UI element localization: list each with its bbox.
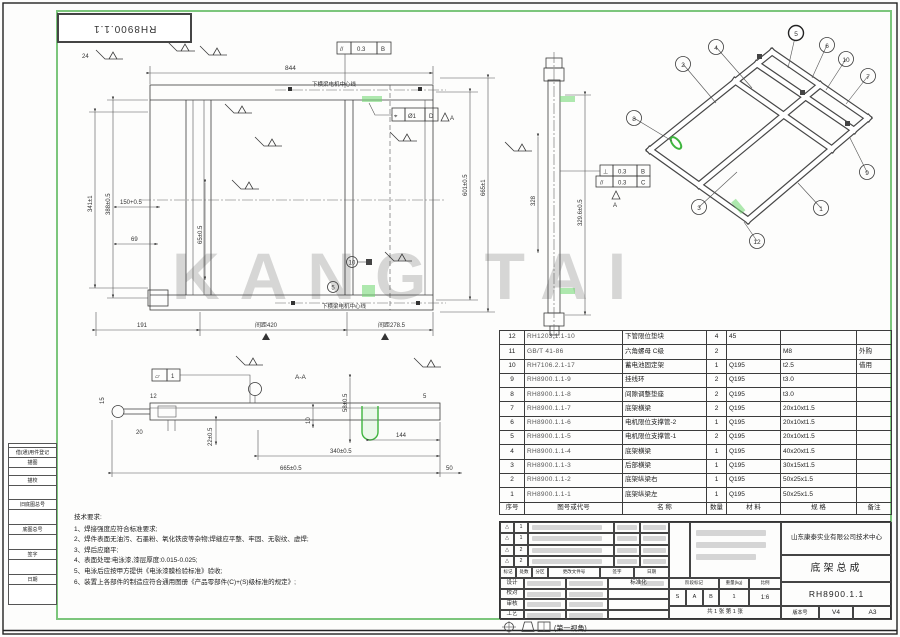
- rev-mark: △: [500, 545, 514, 556]
- parts-cell-qty: 2: [707, 388, 727, 402]
- fcf-parallelism: // 0.3 B: [337, 42, 391, 88]
- svg-text:C: C: [641, 181, 646, 187]
- svg-text:A: A: [613, 203, 617, 209]
- parts-cell-qty: 2: [707, 431, 727, 445]
- sign-label2: [608, 599, 669, 610]
- dim-20: 20: [136, 430, 143, 436]
- parts-row: 6RH8900.1.1-6电机限位支撑管-21Q19520x10xt1.5: [500, 416, 892, 430]
- parts-cell-remark: [857, 416, 892, 430]
- svg-text:8: 8: [632, 116, 636, 123]
- balloon: 6: [812, 38, 835, 79]
- parts-cell-material: Q195: [727, 388, 781, 402]
- illegible-text: [696, 554, 756, 560]
- parts-cell-material: [727, 345, 781, 359]
- highlight-green: [669, 135, 683, 150]
- balloon: 7: [846, 69, 876, 105]
- illegible-text: [569, 613, 603, 618]
- svg-text:6: 6: [825, 43, 829, 50]
- fcf-perpendicularity: ⊥ 0.3 B: [600, 165, 650, 176]
- section-label: A-A: [295, 374, 307, 381]
- svg-text:5: 5: [794, 31, 798, 38]
- dim-278: 间距278.5: [378, 321, 406, 329]
- illegible-text: [569, 581, 603, 586]
- parts-cell-code: RH8900.1.1-5: [525, 431, 623, 445]
- parts-cell-no: 12: [500, 331, 525, 345]
- dim-191: 191: [137, 323, 148, 329]
- parts-cell-qty: 1: [707, 445, 727, 459]
- svg-text:2: 2: [681, 62, 685, 69]
- svg-text://: //: [600, 181, 604, 187]
- parts-cell-material: Q195: [727, 416, 781, 430]
- parts-cell-spec: 30x15xt1.5: [781, 459, 857, 473]
- parts-cell-material: 45: [727, 331, 781, 345]
- parts-cell-no: 1: [500, 488, 525, 502]
- parts-cell-name: 底架纵梁右: [623, 473, 707, 487]
- technical-requirements: 技术要求:1、焊接强度应符合标准要求;2、焊件表面无油污、石墨粉、氧化铁皮等杂物…: [74, 513, 484, 588]
- svg-text:▱: ▱: [155, 374, 160, 380]
- tech-notes-title: 技术要求:: [74, 513, 484, 524]
- balloon: 4: [709, 40, 753, 89]
- illegible-text: [643, 536, 666, 541]
- drawing-number: RH8900.1.1: [781, 582, 892, 606]
- detail-view: ▱ 1 A-A 665±0.5 340±0.5 144 50 58±0.5 22…: [100, 356, 462, 477]
- parts-cell-material: Q195: [727, 488, 781, 502]
- parts-cell-spec: t2.5: [781, 359, 857, 373]
- sign-label: 工艺: [500, 610, 524, 621]
- main-view: 844 601±0.5 665±1 341±1 388±0.5 150+0.5 …: [82, 42, 495, 340]
- parts-cell-name: 后部横梁: [623, 459, 707, 473]
- parts-cell-code: RH8900.1.1-7: [525, 402, 623, 416]
- parts-cell-code: RH7106.2.1-17: [525, 359, 623, 373]
- parts-row: 9RH8900.1.1-9挂线环2Q195t3.0: [500, 373, 892, 387]
- sign-label: 设计: [500, 578, 524, 589]
- parts-cell-name: 下管限位垫块: [623, 331, 707, 345]
- drawing-sheet: KANG TAI: [0, 0, 900, 637]
- illegible-text: [527, 581, 561, 586]
- parts-cell-remark: 借用: [857, 359, 892, 373]
- parts-cell-spec: 20x10xt1.5: [781, 402, 857, 416]
- parts-cell-remark: [857, 402, 892, 416]
- parts-cell-no: 7: [500, 402, 525, 416]
- illegible-text: [569, 592, 603, 597]
- projection-label: (第一视角): [554, 624, 587, 633]
- parts-row: 4RH8900.1.1-4底架横梁1Q19540x20xt1.5: [500, 445, 892, 459]
- parts-cell-name: 底架横梁: [623, 402, 707, 416]
- paper-size: A3: [853, 606, 892, 620]
- parts-cell-material: Q195: [727, 459, 781, 473]
- parts-cell-material: Q195: [727, 473, 781, 487]
- stage-mark: S: [669, 589, 686, 606]
- tech-note-item: 3、焊后应磨平;: [74, 546, 484, 557]
- centerline-note-bottom: 下横梁电机中心线: [322, 302, 367, 310]
- parts-cell-qty: 4: [707, 331, 727, 345]
- dim-144: 144: [396, 433, 407, 439]
- svg-text:Ø1: Ø1: [408, 114, 417, 120]
- svg-text:B: B: [641, 170, 645, 176]
- parts-cell-remark: 外购: [857, 345, 892, 359]
- parts-header-cell: 规 格: [781, 502, 857, 514]
- svg-text:1: 1: [819, 206, 823, 213]
- parts-cell-qty: 1: [707, 473, 727, 487]
- highlight-green: [362, 96, 382, 102]
- rev-header-cell: 签字: [600, 567, 634, 578]
- parts-cell-name: 间隙调整垫座: [623, 388, 707, 402]
- parts-cell-material: Q195: [727, 431, 781, 445]
- parts-cell-name: 蓄电池固定架: [623, 359, 707, 373]
- parts-cell-remark: [857, 431, 892, 445]
- main-balloon-5: 5: [328, 282, 339, 293]
- highlight-green: [560, 96, 575, 102]
- fcf-flatness: ▱ 1: [152, 369, 250, 403]
- weight-value: 1: [719, 589, 749, 606]
- rev-count: 2: [514, 545, 528, 556]
- weld-note-24: 24: [82, 54, 89, 60]
- edge-field: 日期: [8, 574, 57, 585]
- parts-cell-material: Q195: [727, 359, 781, 373]
- illegible-text: [527, 592, 561, 597]
- parts-cell-remark: [857, 388, 892, 402]
- illegible-text: [696, 542, 766, 548]
- weight-label: 重量(kg): [719, 578, 749, 589]
- dim-388: 388±0.5: [106, 193, 112, 215]
- svg-text:⌖: ⌖: [394, 114, 398, 120]
- parts-cell-qty: 1: [707, 416, 727, 430]
- parts-cell-code: GB/T 41-86: [525, 345, 623, 359]
- parts-header-cell: 图号或代号: [525, 502, 623, 514]
- rev-count: 2: [514, 556, 528, 567]
- parts-cell-code: RH8900.1.1-1: [525, 488, 623, 502]
- version-value: V4: [819, 606, 853, 620]
- balloon: 10: [826, 52, 854, 91]
- edge-field: 描图: [8, 457, 57, 468]
- dim-12: 12: [150, 394, 157, 400]
- parts-cell-spec: t3.0: [781, 388, 857, 402]
- parts-header: 序号图号或代号名 称数量材 料规 格备注: [500, 502, 892, 514]
- rev-header-cell: 分区: [532, 567, 548, 578]
- parts-cell-remark: [857, 331, 892, 345]
- weld-symbols: [96, 42, 417, 261]
- parts-row: 3RH8900.1.1-3后部横梁1Q19530x15xt1.5: [500, 459, 892, 473]
- edge-field: 底图总号: [8, 524, 57, 535]
- highlight-green: [362, 285, 375, 297]
- rev-header-cell: 处数: [516, 567, 532, 578]
- parts-cell-no: 8: [500, 388, 525, 402]
- svg-text:B: B: [381, 47, 385, 53]
- svg-text:1: 1: [171, 374, 175, 380]
- parts-cell-no: 4: [500, 445, 525, 459]
- parts-cell-spec: t3.0: [781, 373, 857, 387]
- parts-cell-qty: 1: [707, 359, 727, 373]
- rev-count: 1: [514, 522, 528, 533]
- dim-665: 665±1: [481, 179, 487, 196]
- illegible-text: [527, 602, 561, 607]
- stage-mark: B: [703, 589, 719, 606]
- edge-field: 签字: [8, 549, 57, 560]
- balloon: 1: [798, 183, 829, 216]
- tech-note-item: 6、装置上各部件的制造应符合通用图册《产品零部件(C)+(S)级标准的规定》;: [74, 578, 484, 589]
- illegible-text: [643, 525, 666, 530]
- sign-label: 审核: [500, 599, 524, 610]
- parts-row: 11GB/T 41-86六角螺母 C级2M8外购: [500, 345, 892, 359]
- parts-cell-qty: 2: [707, 373, 727, 387]
- balloon: 12: [744, 222, 765, 249]
- illegible-text: [532, 525, 602, 530]
- sign-label2: [608, 610, 669, 621]
- parts-cell-spec: M8: [781, 345, 857, 359]
- parts-cell-no: 3: [500, 459, 525, 473]
- dim-3296: 329.6±0.5: [578, 199, 584, 226]
- parts-cell-code: RH8900.1.1-6: [525, 416, 623, 430]
- dim-58: 58±0.5: [343, 393, 349, 412]
- svg-text:4: 4: [714, 45, 718, 52]
- illegible-text: [532, 559, 602, 564]
- parts-cell-name: 挂线环: [623, 373, 707, 387]
- datum-ref-a: A: [450, 116, 454, 122]
- edge-field: 旧底图总号: [8, 499, 57, 510]
- svg-text:3: 3: [697, 205, 701, 212]
- svg-text:D: D: [429, 114, 434, 120]
- svg-text:0.3: 0.3: [618, 170, 627, 176]
- svg-text:12: 12: [753, 239, 761, 246]
- highlight-green-slot: [362, 406, 378, 440]
- parts-header-cell: 名 称: [623, 502, 707, 514]
- parts-cell-material: Q195: [727, 373, 781, 387]
- svg-text://: //: [340, 47, 344, 53]
- parts-cell-remark: [857, 445, 892, 459]
- parts-cell-no: 5: [500, 431, 525, 445]
- illegible-text: [532, 536, 602, 541]
- parts-cell-name: 电机限位支撑管-1: [623, 431, 707, 445]
- dim-328: 328: [531, 195, 537, 206]
- main-balloon-10: 10: [347, 257, 373, 268]
- illegible-text: [617, 548, 637, 553]
- svg-text:5: 5: [331, 286, 335, 292]
- parts-cell-no: 10: [500, 359, 525, 373]
- svg-text:10: 10: [842, 57, 850, 64]
- dim-340: 340±0.5: [330, 449, 352, 455]
- parts-cell-no: 2: [500, 473, 525, 487]
- parts-cell-name: 六角螺母 C级: [623, 345, 707, 359]
- sign-label: 校对: [500, 589, 524, 600]
- parts-cell-material: Q195: [727, 402, 781, 416]
- parts-cell-code: RH8900.1.1-9: [525, 373, 623, 387]
- company-name: 山东康泰实业有限公司技术中心: [781, 522, 892, 555]
- illegible-text: [569, 602, 603, 607]
- datum-a-flag: A: [560, 171, 620, 209]
- dim-420: 间距420: [255, 321, 278, 329]
- border-edge-fields: 借(通)用件登记描图描校旧底图总号底图总号签字日期: [8, 443, 57, 605]
- parts-cell-code: RH8900.1.1-3: [525, 459, 623, 473]
- parts-cell-material: Q195: [727, 445, 781, 459]
- approval-column: [669, 522, 690, 578]
- dim-601: 601±0.5: [463, 174, 469, 196]
- tech-note-item: 5、电泳后应按甲方提供《电泳漆膜检验标准》验收;: [74, 567, 484, 578]
- highlight-green: [560, 288, 575, 294]
- parts-row: 8RH8900.1.1-8间隙调整垫座2Q195t3.0: [500, 388, 892, 402]
- stage-label: 阶段标记: [669, 578, 719, 589]
- parts-row: 2RH8900.1.1-2底架纵梁右1Q19550x25x1.5: [500, 473, 892, 487]
- parts-row: 10RH7106.2.1-17蓄电池固定架1Q195t2.5借用: [500, 359, 892, 373]
- illegible-text: [643, 548, 666, 553]
- rev-mark: △: [500, 556, 514, 567]
- balloon: 2: [676, 57, 717, 104]
- rev-mark: △: [500, 533, 514, 544]
- parts-cell-code: RH8900.1.1-2: [525, 473, 623, 487]
- illegible-text: [643, 559, 666, 564]
- fcf-parallelism-c: // 0.3 C: [596, 176, 650, 187]
- parts-cell-name: 电机限位支撑管-2: [623, 416, 707, 430]
- parts-cell-remark: [857, 373, 892, 387]
- dim-341: 341±1: [88, 195, 94, 212]
- sheet-count: 共 1 张 第 1 张: [669, 606, 781, 620]
- rev-header-cell: 标记: [500, 567, 516, 578]
- sign-label2: [608, 589, 669, 600]
- dim-50: 50: [446, 466, 453, 472]
- parts-header-cell: 备注: [857, 502, 892, 514]
- svg-text:0.3: 0.3: [618, 181, 627, 187]
- parts-cell-spec: 20x10xt1.5: [781, 416, 857, 430]
- dim-665d: 665±0.5: [280, 466, 302, 472]
- svg-text:0.3: 0.3: [357, 47, 366, 53]
- tech-note-item: 1、焊接强度应符合标准要求;: [74, 525, 484, 536]
- svg-text:9: 9: [865, 170, 869, 177]
- parts-cell-qty: 2: [707, 345, 727, 359]
- iso-view: [650, 52, 868, 220]
- svg-text:⊥: ⊥: [603, 169, 608, 176]
- parts-cell-code: RH8900.1.1-8: [525, 388, 623, 402]
- dim-69: 69: [131, 237, 138, 243]
- balloon: 9: [850, 138, 875, 180]
- stage-mark: A: [686, 589, 703, 606]
- dim-22: 22±0.5: [208, 427, 214, 446]
- parts-row: 12RH1203.1.1-10下管限位垫块445: [500, 331, 892, 345]
- dim-10: 10: [306, 417, 312, 424]
- dim-844: 844: [285, 65, 296, 72]
- parts-row: 1RH8900.1.1-1底架纵梁左1Q19550x25x1.5: [500, 488, 892, 502]
- parts-header-cell: 材 料: [727, 502, 781, 514]
- title-block: 山东康泰实业有限公司技术中心 底架总成 RH8900.1.1 版本号 V4 A3…: [499, 521, 891, 619]
- illegible-text: [617, 559, 637, 564]
- parts-cell-spec: 50x25x1.5: [781, 473, 857, 487]
- parts-cell-name: 底架纵梁左: [623, 488, 707, 502]
- illegible-text: [696, 530, 766, 536]
- parts-header-cell: 序号: [500, 502, 525, 514]
- parts-cell-no: 11: [500, 345, 525, 359]
- parts-table: 12RH1203.1.1-10下管限位垫块44511GB/T 41-86六角螺母…: [499, 330, 892, 515]
- illegible-text: [532, 548, 602, 553]
- parts-row: 5RH8900.1.1-5电机限位支撑管-12Q19520x10xt1.5: [500, 431, 892, 445]
- edge-field: 描校: [8, 475, 57, 486]
- parts-cell-spec: [781, 331, 857, 345]
- parts-cell-remark: [857, 459, 892, 473]
- dim-150: 150+0.5: [120, 200, 143, 206]
- illegible-text: [640, 581, 664, 586]
- parts-cell-code: RH8900.1.1-4: [525, 445, 623, 459]
- tech-note-item: 4、表面处理:电泳漆,漆层厚度:0.015-0.025;: [74, 556, 484, 567]
- rev-mark: △: [500, 522, 514, 533]
- parts-cell-spec: 20x10xt1.5: [781, 431, 857, 445]
- parts-cell-name: 底架横梁: [623, 445, 707, 459]
- scale-label: 比例: [749, 578, 781, 589]
- parts-cell-code: RH1203.1.1-10: [525, 331, 623, 345]
- scale-value: 1:6: [749, 589, 781, 606]
- parts-cell-spec: 50x25x1.5: [781, 488, 857, 502]
- corner-drawing-number: RH8900.1.1: [57, 13, 192, 43]
- illegible-text: [527, 613, 561, 618]
- dim-65: 65±0.5: [198, 225, 204, 244]
- parts-row: 7RH8900.1.1-7底架横梁2Q19520x10xt1.5: [500, 402, 892, 416]
- product-name: 底架总成: [781, 555, 892, 582]
- svg-text:10: 10: [349, 261, 356, 267]
- dim-15: 15: [100, 397, 106, 404]
- parts-cell-remark: [857, 473, 892, 487]
- rev-header-cell: 日期: [634, 567, 669, 578]
- illegible-text: [617, 536, 637, 541]
- side-view: 328 329.6±0.5 ⊥ 0.3 B // 0.3 C A: [505, 52, 650, 340]
- parts-cell-no: 9: [500, 373, 525, 387]
- rev-count: 1: [514, 533, 528, 544]
- centerline-note-top: 下横梁电机中心线: [312, 80, 357, 88]
- illegible-text: [617, 525, 637, 530]
- parts-cell-no: 6: [500, 416, 525, 430]
- parts-cell-spec: 40x20xt1.5: [781, 445, 857, 459]
- parts-header-cell: 数量: [707, 502, 727, 514]
- parts-cell-qty: 2: [707, 402, 727, 416]
- dim-5: 5: [423, 394, 427, 400]
- svg-text:7: 7: [866, 74, 870, 81]
- fcf-position: ⌖ Ø1 D A: [369, 103, 454, 122]
- rev-header-cell: 更改文件号: [548, 567, 600, 578]
- parts-cell-qty: 1: [707, 488, 727, 502]
- tech-note-item: 2、焊件表面无油污、石墨粉、氧化铁皮等杂物;焊缝应平整、牢固、无裂纹、虚焊;: [74, 535, 484, 546]
- version-label: 版本号: [781, 606, 819, 620]
- parts-cell-qty: 1: [707, 459, 727, 473]
- parts-cell-remark: [857, 488, 892, 502]
